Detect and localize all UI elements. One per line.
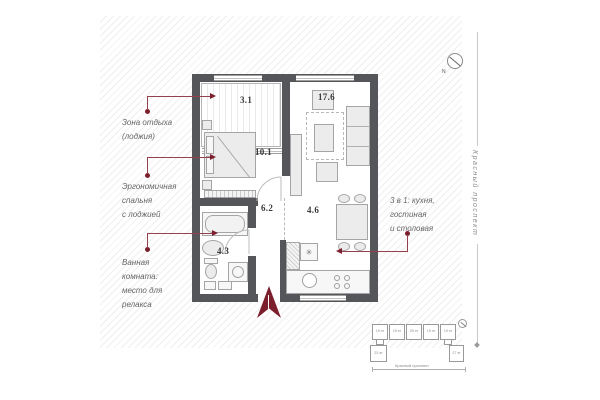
callout-label-bathroom: Ванная комната: место для релакса xyxy=(122,256,162,312)
callout-line xyxy=(147,233,212,234)
site-street-label: Красный проспект xyxy=(384,364,440,368)
compass-icon xyxy=(447,53,463,69)
callout-text-line: Ванная xyxy=(122,256,162,270)
callout-text-line: с лоджией xyxy=(122,208,176,222)
sofa-cushion-line xyxy=(346,126,370,127)
street-dimension-line xyxy=(477,244,478,344)
callout-arrow-icon xyxy=(336,248,342,254)
site-block: 19 эт xyxy=(389,324,405,340)
site-plan: 19 эт 19 эт 25 эт 19 эт 19 эт 23 эт 27 э… xyxy=(370,318,470,376)
site-block: 19 эт xyxy=(372,324,388,340)
site-dimension-tick xyxy=(372,367,373,372)
compass-north-label: N xyxy=(442,69,446,75)
dining-chair xyxy=(354,194,366,203)
callout-text-line: Эргономичная xyxy=(122,180,176,194)
stove xyxy=(332,273,354,290)
callout-arrow-icon xyxy=(212,230,218,236)
callout-arrow-icon xyxy=(210,93,216,99)
site-compass-icon xyxy=(458,319,467,328)
kitchen-sink xyxy=(302,273,317,288)
site-compass-needle xyxy=(460,322,466,327)
dining-chair xyxy=(354,242,366,251)
tall-cabinet xyxy=(290,134,302,196)
site-block: 19 эт xyxy=(440,324,456,340)
callout-line xyxy=(147,96,210,97)
callout-line xyxy=(407,235,408,252)
hall-cabinet xyxy=(286,242,300,270)
room-area-bathroom: 4.3 xyxy=(217,246,229,256)
window-glass-line xyxy=(300,298,346,299)
wall-living-divider xyxy=(282,74,290,176)
room-area-living: 17.6 xyxy=(318,92,335,102)
callout-line xyxy=(147,233,148,248)
site-block: 27 эт xyxy=(449,345,464,362)
callout-line xyxy=(147,96,148,110)
callout-text-line: (лоджия) xyxy=(122,130,172,144)
dimension-end-tick xyxy=(474,342,480,348)
callout-line xyxy=(147,157,210,158)
site-dimension-line xyxy=(372,369,466,370)
callout-text-line: спальня xyxy=(122,194,176,208)
wardrobe xyxy=(204,190,256,198)
room-area-kitchen: 4.6 xyxy=(307,205,319,215)
nightstand xyxy=(202,180,212,190)
sofa xyxy=(346,106,370,166)
wall-bottom xyxy=(192,294,378,302)
bedroom-door-arc xyxy=(256,176,282,202)
window-glass-line xyxy=(296,78,354,79)
callout-label-kitchen: 3 в 1: кухня, гостиная и столовая xyxy=(390,194,450,236)
bath-cabinet xyxy=(204,281,216,290)
window-kitchen xyxy=(300,295,346,301)
fridge: ✳ xyxy=(300,243,318,261)
compass-needle xyxy=(449,57,460,67)
wall-left xyxy=(192,74,200,302)
callout-line xyxy=(147,157,148,174)
room-area-hallway: 6.2 xyxy=(261,203,273,213)
window-glass-line xyxy=(214,78,262,79)
callout-text-line: и столовая xyxy=(390,222,450,236)
room-area-bedroom: 10.1 xyxy=(255,147,272,157)
floor-plan-page: ✳ 3.1 17.6 10.1 6.2 4.6 4.3 Зона отдыха … xyxy=(0,0,600,400)
burner xyxy=(344,275,350,281)
callout-text-line: релакса xyxy=(122,298,162,312)
burner xyxy=(334,275,340,281)
callout-text-line: место для xyxy=(122,284,162,298)
hall-kitchen-opening-line xyxy=(284,198,285,240)
pillow xyxy=(206,136,214,154)
callout-text-line: комната: xyxy=(122,270,162,284)
callout-label-bedroom: Эргономичная спальня с лоджией xyxy=(122,180,176,222)
window-living xyxy=(296,75,354,81)
wall-bedroom-bottom xyxy=(192,198,258,206)
burner xyxy=(334,283,340,289)
dining-table xyxy=(336,204,368,240)
site-block: 23 эт xyxy=(370,345,387,362)
window-loggia xyxy=(214,75,262,81)
callout-line xyxy=(342,251,408,252)
callout-text-line: 3 в 1: кухня, xyxy=(390,194,450,208)
bath-cabinet xyxy=(218,281,232,290)
toilet-bowl xyxy=(205,264,217,279)
site-dimension-tick xyxy=(465,367,466,372)
coffee-table xyxy=(314,124,334,152)
site-block: 19 эт xyxy=(423,324,439,340)
armchair xyxy=(316,162,338,182)
room-area-loggia: 3.1 xyxy=(240,95,252,105)
street-name-vertical: Красный проспект xyxy=(471,150,478,242)
callout-arrow-icon xyxy=(210,154,216,160)
kitchen-counter xyxy=(286,270,370,294)
nightstand xyxy=(202,120,212,130)
snowflake-icon: ✳ xyxy=(306,248,313,257)
site-block: 25 эт xyxy=(406,324,422,340)
callout-text-line: Зона отдыха xyxy=(122,116,172,130)
callout-label-loggia: Зона отдыха (лоджия) xyxy=(122,116,172,144)
washer-drum xyxy=(232,266,244,278)
sofa-cushion-line xyxy=(346,146,370,147)
street-dimension-line xyxy=(477,32,478,146)
burner xyxy=(344,283,350,289)
wall-right xyxy=(370,74,378,302)
callout-text-line: гостиная xyxy=(390,208,450,222)
dining-chair xyxy=(338,194,350,203)
